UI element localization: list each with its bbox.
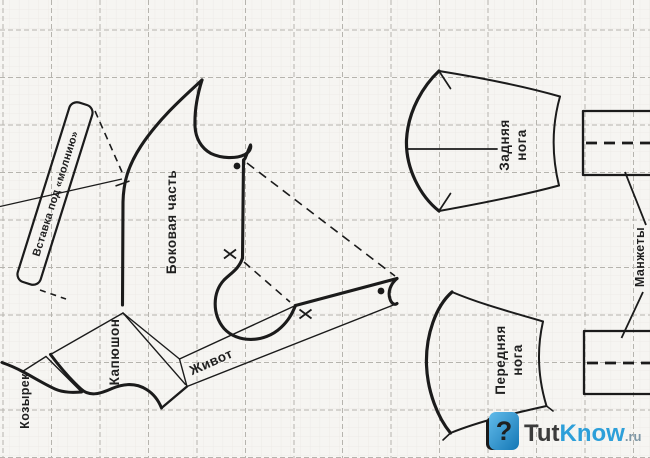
watermark-tut[interactable]: Tut	[524, 420, 560, 447]
side-part-label: Боковая часть	[164, 170, 179, 274]
front-leg-label-line2: нога	[510, 344, 525, 376]
watermark-text[interactable]: TutKnow.ru	[524, 420, 642, 447]
watermark-icon[interactable]: ?	[486, 412, 519, 450]
cuffs-label: Манжеты	[633, 227, 647, 287]
pattern-sheet: Вставка под «молнию» Боковая часть Капюш…	[0, 0, 650, 458]
pattern-drawing: Вставка под «молнию» Боковая часть Капюш…	[0, 0, 650, 458]
visor-label: Козырек	[18, 373, 32, 429]
back-leg-label-line1: Задняя	[497, 119, 512, 170]
match-point-dot-tail	[378, 288, 385, 295]
watermark-know[interactable]: Know	[560, 420, 626, 447]
watermark-ru[interactable]: .ru	[625, 429, 642, 444]
match-point-dot-neck	[234, 163, 241, 170]
grid-minor	[0, 0, 650, 458]
back-leg-label-line2: нога	[514, 129, 529, 161]
question-mark-glyph: ?	[496, 416, 513, 446]
front-leg-label-line1: Передняя	[493, 325, 508, 394]
hood-label: Капюшон	[107, 319, 122, 386]
